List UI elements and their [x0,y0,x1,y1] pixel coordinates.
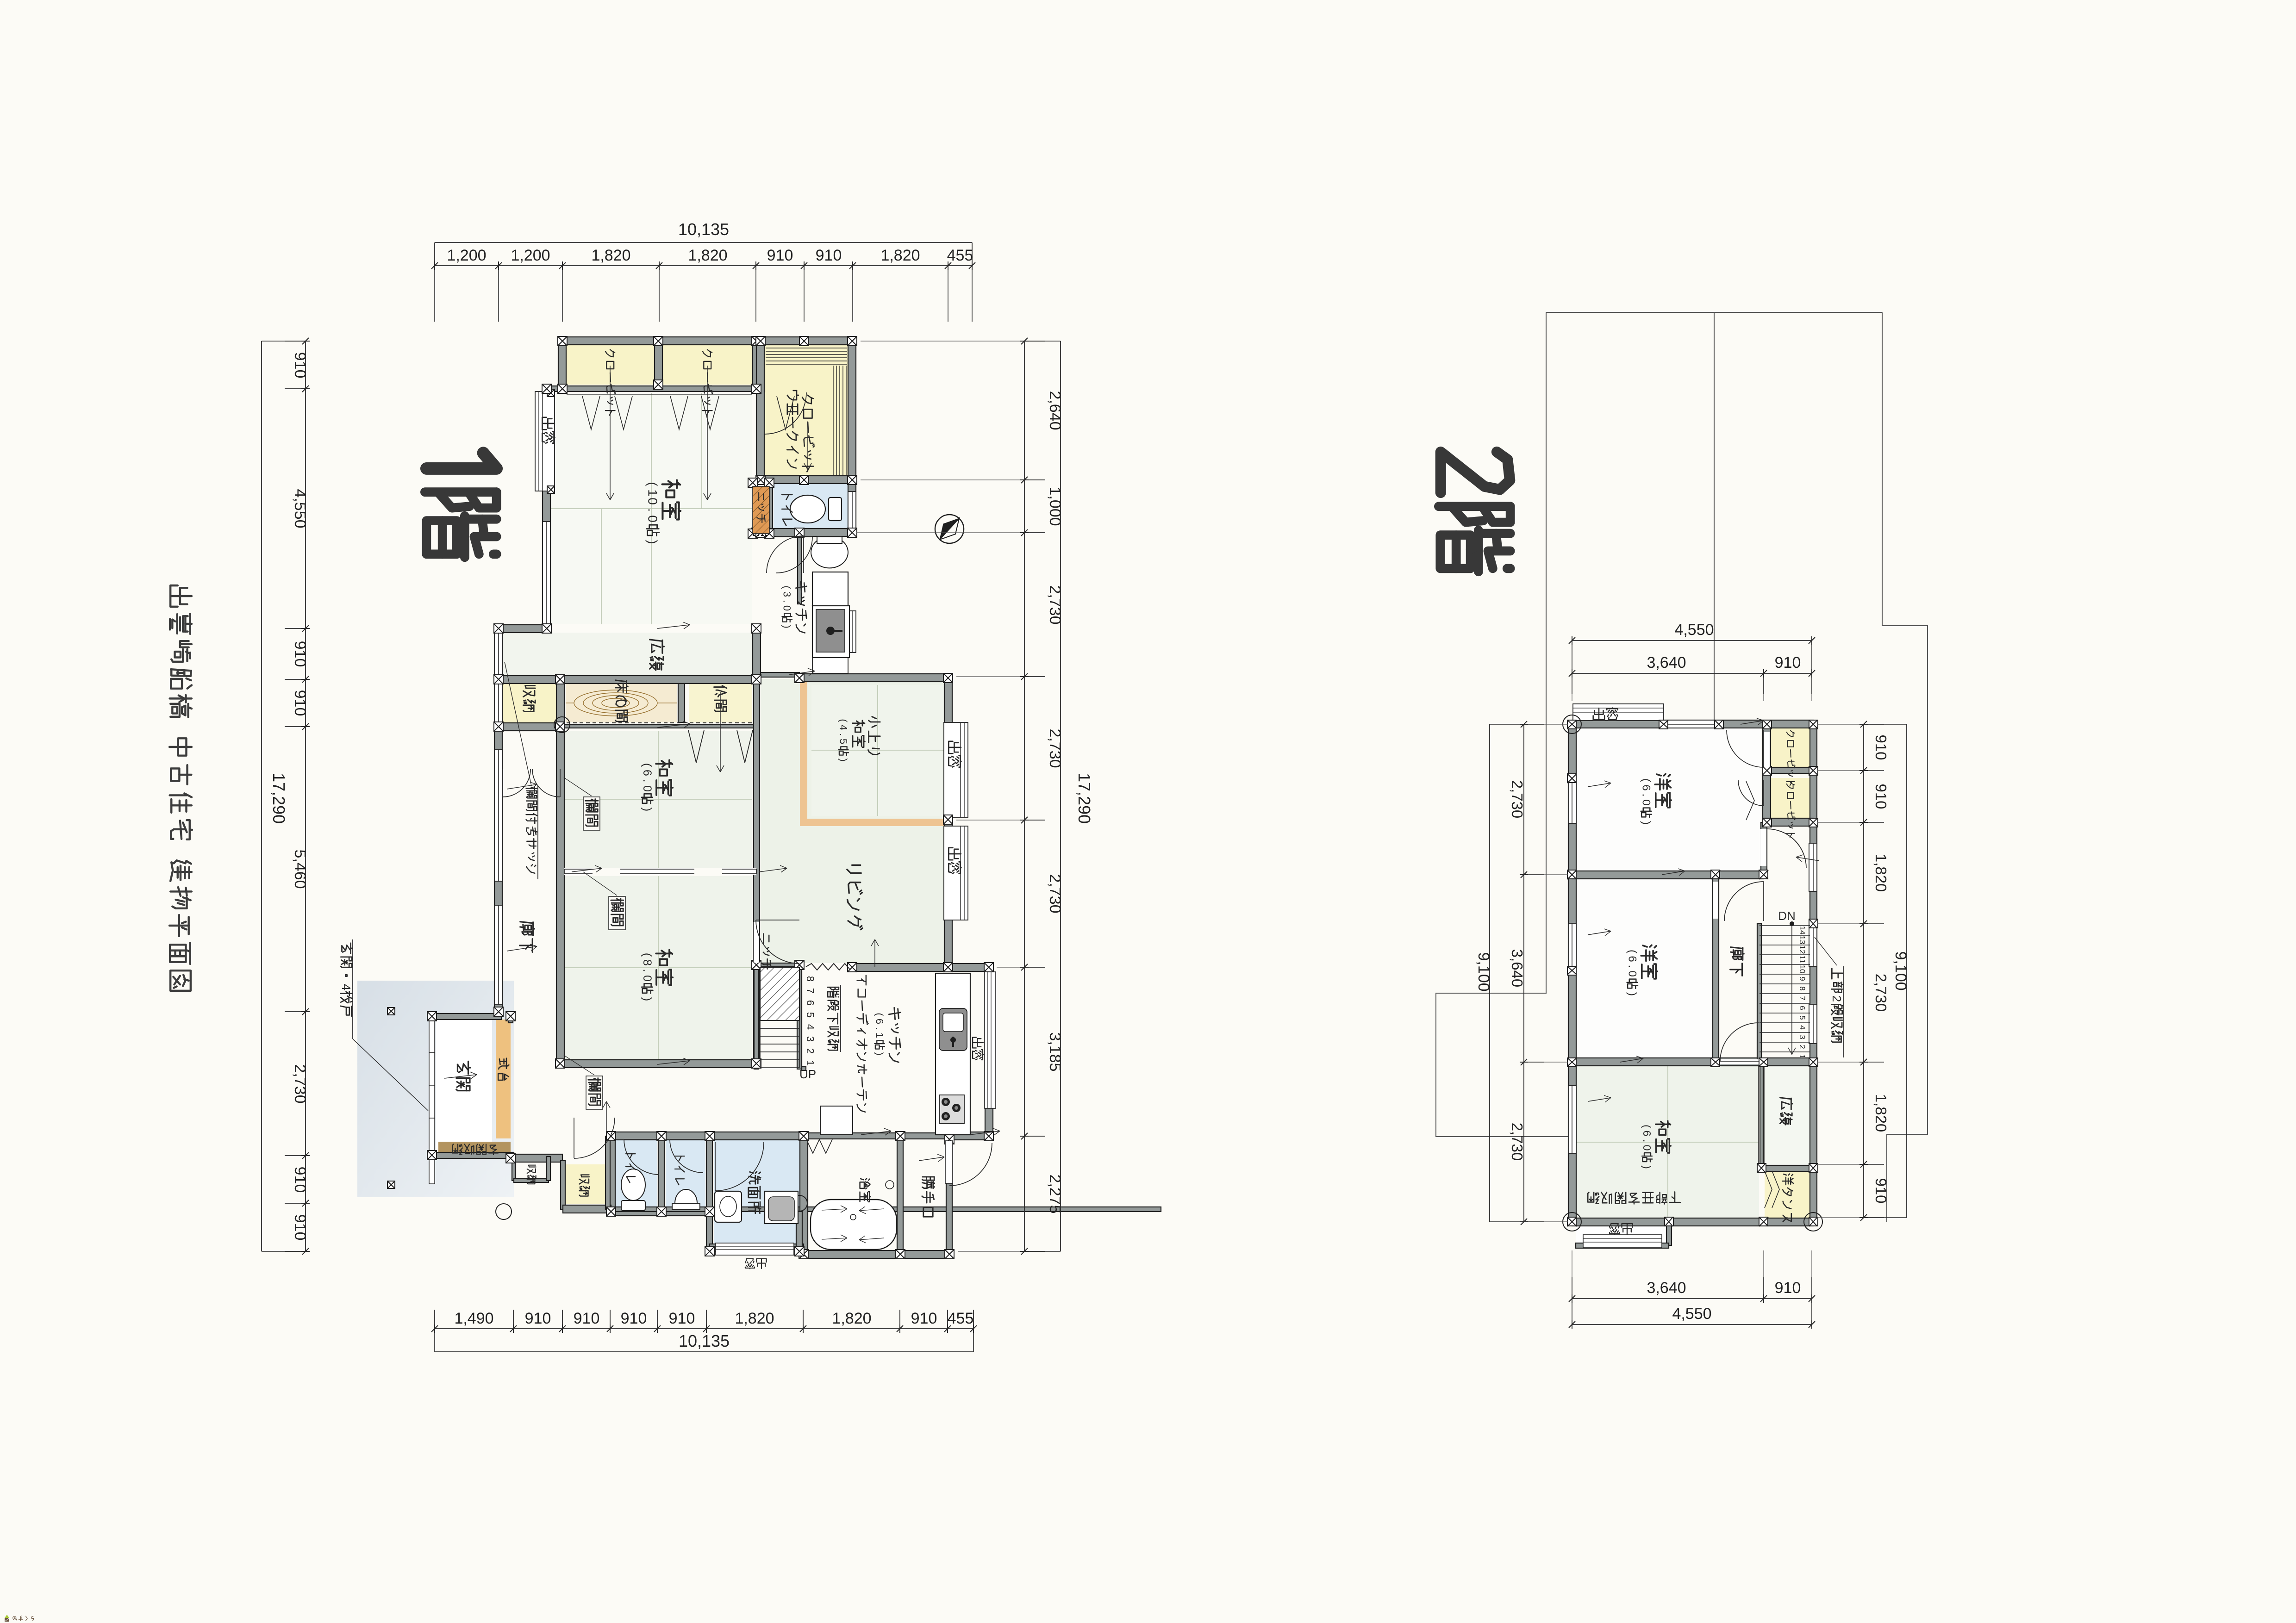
svg-text:(: ( [641,763,654,767]
svg-text:4,550: 4,550 [1674,621,1714,639]
svg-text:1: 1 [805,1060,816,1066]
svg-text:(: ( [781,585,793,589]
svg-text:910: 910 [291,641,309,667]
svg-text:1: 1 [646,489,660,497]
svg-text:4,550: 4,550 [1672,1305,1711,1323]
svg-text:): ) [838,758,849,761]
svg-text:14: 14 [1798,926,1807,935]
svg-text:): ) [1640,821,1653,825]
svg-text:9,100: 9,100 [1475,952,1492,991]
svg-text:4: 4 [339,984,353,990]
svg-text:910: 910 [669,1310,695,1327]
svg-text:3,185: 3,185 [1046,1032,1064,1071]
svg-text:6: 6 [1640,784,1653,790]
svg-text:1,820: 1,820 [1872,1094,1890,1132]
svg-text:455: 455 [948,1310,974,1327]
svg-text:(: ( [641,953,654,957]
svg-text:10: 10 [1798,965,1807,974]
svg-text:1: 1 [874,1032,886,1038]
svg-text:1,820: 1,820 [1872,854,1890,892]
svg-text:(: ( [1626,950,1639,953]
svg-text:4: 4 [1798,1025,1807,1029]
svg-text:2,730: 2,730 [1046,874,1064,913]
svg-text:4: 4 [838,725,849,730]
svg-text:17,290: 17,290 [269,773,288,824]
svg-text:): ) [646,540,660,544]
svg-text:0: 0 [1626,970,1639,976]
svg-text:1,200: 1,200 [511,247,550,264]
svg-text:0: 0 [1641,1145,1653,1151]
svg-text:910: 910 [911,1310,937,1327]
svg-text:6: 6 [1626,956,1639,962]
svg-text:1,000: 1,000 [1046,486,1064,526]
svg-text:): ) [874,1052,886,1055]
svg-text:1,820: 1,820 [591,247,630,264]
svg-text:): ) [1641,1165,1653,1169]
svg-text:.: . [1641,1139,1653,1142]
svg-text:910: 910 [1872,1178,1890,1203]
svg-text:1: 1 [1798,1054,1807,1058]
svg-text:(: ( [838,719,849,722]
svg-text:7: 7 [1798,996,1807,1000]
svg-text:7: 7 [805,988,816,994]
svg-text:6: 6 [874,1019,886,1024]
svg-text:.: . [1640,794,1653,797]
svg-text:9,100: 9,100 [1892,951,1909,990]
svg-text:910: 910 [291,352,309,379]
svg-text:2,730: 2,730 [291,1064,309,1103]
svg-text:1,820: 1,820 [688,247,727,264]
svg-text:.: . [641,779,654,783]
svg-text:910: 910 [291,1167,309,1193]
svg-text:1,490: 1,490 [454,1310,493,1327]
svg-text:910: 910 [621,1310,647,1327]
svg-text:910: 910 [1775,1279,1801,1297]
svg-text:(: ( [1640,778,1653,782]
svg-text:.: . [641,969,654,972]
svg-text:DN: DN [1778,909,1796,923]
svg-text:): ) [641,997,654,1001]
svg-text:): ) [641,808,654,811]
svg-text:0: 0 [646,497,660,505]
svg-text:5: 5 [805,1012,816,1018]
svg-text:910: 910 [1775,654,1801,672]
svg-text:3,640: 3,640 [1647,654,1686,672]
svg-text:8: 8 [805,976,816,982]
svg-text:0: 0 [641,975,654,982]
svg-text:1,820: 1,820 [880,247,920,264]
svg-text:2: 2 [805,1048,816,1054]
svg-text:910: 910 [1872,734,1890,760]
svg-text:12: 12 [1798,945,1807,954]
svg-text:2,730: 2,730 [1509,780,1526,819]
svg-text:3: 3 [1798,1035,1807,1039]
svg-text:10,135: 10,135 [678,220,729,239]
svg-text:455: 455 [947,247,973,264]
svg-text:11: 11 [1798,955,1807,964]
svg-text:.: . [874,1027,886,1030]
svg-text:910: 910 [525,1310,551,1327]
svg-text:.: . [781,600,793,603]
svg-text:2,730: 2,730 [1872,974,1890,1012]
svg-text:10,135: 10,135 [679,1331,730,1350]
svg-text:6: 6 [1798,1006,1807,1010]
svg-text:910: 910 [291,690,309,716]
svg-text:UP: UP [799,1067,816,1081]
svg-text:2,730: 2,730 [1046,728,1064,768]
svg-text:2,730: 2,730 [1046,585,1064,624]
svg-text:1,200: 1,200 [447,247,486,264]
svg-text:3: 3 [805,1036,816,1042]
svg-text:2,275: 2,275 [1046,1174,1064,1213]
svg-text:3,640: 3,640 [1647,1279,1686,1297]
svg-text:0: 0 [641,785,654,792]
svg-text:2: 2 [1830,995,1844,1002]
svg-text:.: . [1626,965,1639,968]
svg-text:9: 9 [1798,976,1807,981]
svg-text:6: 6 [805,1000,816,1006]
svg-text:910: 910 [291,1214,309,1241]
svg-text:5: 5 [1798,1015,1807,1020]
svg-text:2,640: 2,640 [1046,391,1064,430]
svg-text:910: 910 [767,247,793,264]
svg-text:910: 910 [816,247,842,264]
svg-text:5: 5 [838,739,849,744]
svg-text:): ) [781,625,793,628]
svg-text:0: 0 [646,515,660,522]
svg-text:6: 6 [641,770,654,776]
svg-text:0: 0 [781,605,793,611]
svg-text:4,550: 4,550 [291,489,309,528]
svg-text:13: 13 [1798,936,1807,945]
svg-text:17,290: 17,290 [1075,773,1094,824]
svg-text:4: 4 [805,1024,816,1030]
svg-text:): ) [1626,992,1639,996]
svg-text:1,820: 1,820 [735,1310,774,1327]
svg-text:(: ( [874,1013,886,1016]
svg-text:.: . [838,733,849,736]
svg-text:2: 2 [1798,1045,1807,1049]
svg-text:3: 3 [781,591,793,597]
svg-text:910: 910 [574,1310,600,1327]
svg-text:6: 6 [1641,1131,1653,1137]
svg-text:(: ( [646,482,660,486]
svg-text:8: 8 [641,959,654,966]
svg-text:8: 8 [1798,986,1807,990]
svg-text:.: . [646,508,660,512]
svg-text:2,730: 2,730 [1509,1123,1526,1161]
svg-text:(: ( [1641,1125,1653,1128]
svg-text:3,640: 3,640 [1509,949,1526,988]
svg-text:910: 910 [1872,784,1890,809]
svg-text:5,460: 5,460 [291,849,309,889]
svg-text:0: 0 [1640,799,1653,805]
svg-text:1,820: 1,820 [832,1310,871,1327]
